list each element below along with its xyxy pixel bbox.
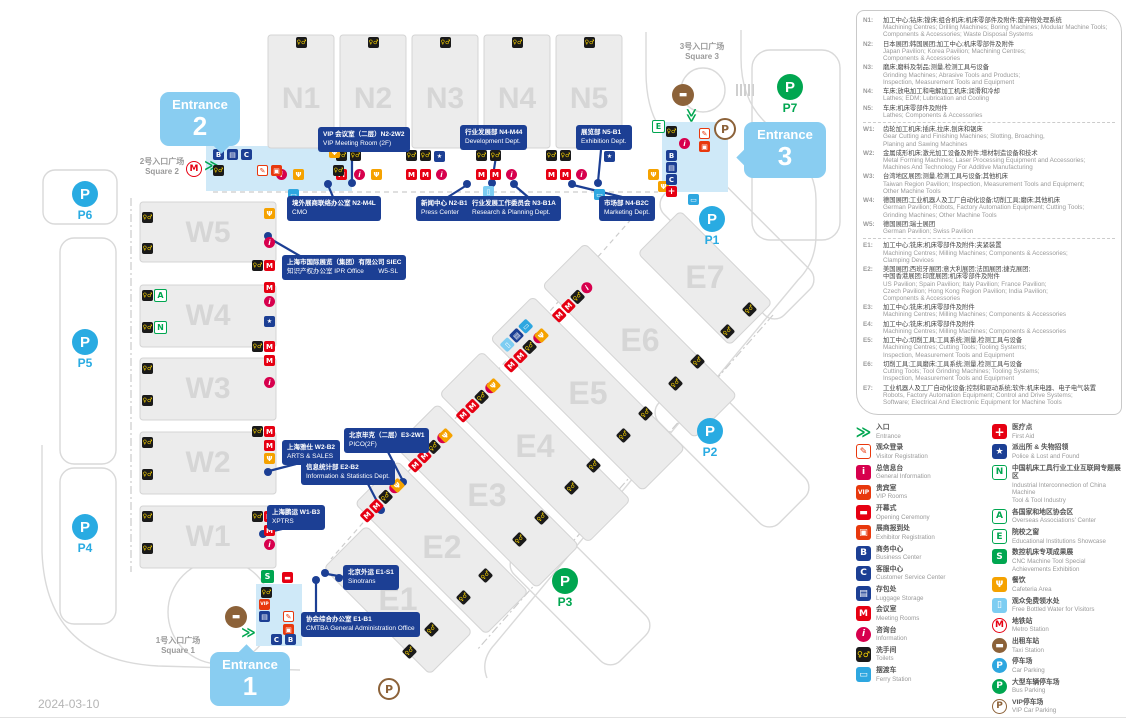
entrance-icon: ≫ xyxy=(856,424,871,439)
facility-zh: 出租车站 xyxy=(1012,638,1122,646)
facility-legend-right: + 医疗点 First Aid ★ 派出所 & 失物招领 Police & Lo… xyxy=(992,424,1122,719)
facility-en: Ferry Station xyxy=(876,676,986,684)
hall-code: E5: xyxy=(863,337,880,359)
toilets-icon xyxy=(368,37,379,48)
page-bottom-divider xyxy=(0,717,1126,718)
facility-zh: 派出所 & 失物招领 xyxy=(1012,444,1122,452)
hall-desc-en: Cutting Tools; Tool Grinding Machines; T… xyxy=(883,368,1115,382)
hall-desc-en: Robots, Factory Automation Equipment; Co… xyxy=(883,392,1115,406)
hall-desc-en: German Pavilion; Swiss Pavilion xyxy=(883,228,1115,235)
legend-facility-entry: ▯ 观众免费领水处 Free Bottled Water for Visitor… xyxy=(992,598,1122,614)
toilets-icon xyxy=(690,354,706,370)
hall-code: E4: xyxy=(863,321,880,335)
customer-service-icon: C xyxy=(856,566,871,581)
legend-hall-entry: E1: 加工中心;铣床;机床零部件及附件;夹紧装置 Machining Cent… xyxy=(863,242,1115,264)
cnc-achievements-icon: S xyxy=(992,549,1007,564)
hall-code: W1: xyxy=(863,126,880,148)
taxi-station-icon: ▬ xyxy=(992,638,1007,653)
map-label-en: Sinotrans xyxy=(348,577,394,586)
luggage-storage-icon xyxy=(666,162,677,173)
legend-facility-entry: ▭ 摆渡车 Ferry Station xyxy=(856,667,986,683)
police-icon xyxy=(434,151,445,162)
facility-en: Luggage Storage xyxy=(876,595,986,603)
toilets-icon xyxy=(560,150,571,161)
legend-hall-entry: N1: 加工中心;钻床;镗床;组合机床;机床零部件及附件;废弃物处理系统 Mac… xyxy=(863,17,1115,39)
legend-hall-entry: N4: 车床;放电加工和电解加工机床;润滑和冷却 Lathes; EDM; Lu… xyxy=(863,88,1115,102)
hall-legend-group-n: N1: 加工中心;钻床;镗床;组合机床;机床零部件及附件;废弃物处理系统 Mac… xyxy=(863,17,1115,119)
exhibition-map-page: N1 N2 N3 N4 N5 W5 W4 W3 W2 W1 E1 E2 E3 E… xyxy=(0,0,1126,723)
parking-p5: P5 xyxy=(59,329,111,370)
information-icon xyxy=(264,377,275,388)
hall-desc-en: Machining Centres; Milling Machines; Com… xyxy=(883,250,1115,264)
legend-hall-entry: N2: 日本展团;韩国展团;加工中心;机床零部件及附件 Japan Pavili… xyxy=(863,41,1115,63)
meeting-rooms-icon xyxy=(546,169,557,180)
legend-facility-entry: B 商务中心 Business Center xyxy=(856,546,986,562)
map-label-zh: 上海市国际展览（集团）有限公司 SIEC xyxy=(287,258,401,267)
toilets-icon xyxy=(252,341,263,352)
legend-hall-entry: E3: 加工中心;铣床;机床零部件及附件 Machining Centres; … xyxy=(863,304,1115,318)
overseas-associations-icon: A xyxy=(992,509,1007,524)
ferry-station-icon xyxy=(688,194,699,205)
bus-parking-icon xyxy=(552,568,578,594)
parking-p7: P7 xyxy=(764,74,816,115)
facility-zh: 停车场 xyxy=(1012,658,1122,666)
facility-legend: ≫ 入口 Entrance ✎ 观众登录 Visitor Registratio… xyxy=(856,424,1122,719)
legend-hall-entry: E5: 加工中心;切削工具;工具系统;测量,检测工具与设备 Machining … xyxy=(863,337,1115,359)
hall-code: E2: xyxy=(863,266,880,302)
map-label-en: Research & Planning Dept. xyxy=(472,208,556,217)
taxi-station-icon xyxy=(672,84,694,106)
information-icon xyxy=(436,169,447,180)
cafeteria-icon xyxy=(264,453,275,464)
map-label-marketing-dept: 市场部 N4-B2CMarketing Dept. xyxy=(599,196,655,221)
map-label-zh: 新闻中心 N2-B1 xyxy=(421,199,468,208)
facility-en: VIP Car Parking xyxy=(1012,707,1122,715)
legend-panel: N1: 加工中心;钻床;镗床;组合机床;机床零部件及附件;废弃物处理系统 Mac… xyxy=(856,10,1122,719)
hall-desc-zh: 加工中心;切削工具;工具系统;测量,检测工具与设备 xyxy=(883,337,1115,344)
facility-zh: 开幕式 xyxy=(876,505,986,513)
legend-hall-entry: N5: 车床;机床零部件及附件 Lathes; Components & Acc… xyxy=(863,105,1115,119)
meeting-rooms-icon xyxy=(560,169,571,180)
legend-hall-entry: W1: 齿轮加工机床;插床,拉床,刨床和锯床 Gear Cutting and … xyxy=(863,126,1115,148)
facility-en: Customer Service Center xyxy=(876,574,986,582)
toilets-icon xyxy=(478,568,494,584)
facility-en: Car Parking xyxy=(1012,667,1122,675)
hall-desc-zh: 加工中心;铣床;机床零部件及附件 xyxy=(883,304,1115,311)
hall-desc-zh: 切削工具;工具磨床;工具系统;测量,检测工具与设备 xyxy=(883,361,1115,368)
legend-hall-entry: W3: 台湾地区展团;测量,检测工具与设备;其他机床 Taiwan Region… xyxy=(863,173,1115,195)
facility-en: Opening Ceremony xyxy=(876,514,986,522)
toilets-icon xyxy=(742,302,758,318)
visitor-registration-icon: ✎ xyxy=(856,444,871,459)
police-icon xyxy=(264,316,275,327)
toilets-icon xyxy=(142,322,153,333)
facility-zh: 院校之窗 xyxy=(1012,529,1122,537)
bus-parking-icon xyxy=(777,74,803,100)
facility-en: Metro Station xyxy=(1012,626,1122,634)
square-2-label: 2号入口广场 Square 2 xyxy=(131,157,193,176)
industrial-internet-icon xyxy=(154,321,167,334)
entrance-arrows-icon xyxy=(243,627,254,638)
facility-zh: 入口 xyxy=(876,424,986,432)
hall-legend: N1: 加工中心;钻床;镗床;组合机床;机床零部件及附件;废弃物处理系统 Mac… xyxy=(856,10,1122,415)
map-label-vip-meeting-room: VIP 会议室（二层）N2-2W2VIP Meeting Room (2F) xyxy=(318,127,410,152)
toilets-icon xyxy=(720,324,736,340)
hall-desc-zh: 磨床;磨料及制品;测量,检测工具与设备 xyxy=(883,64,1115,71)
hall-desc-en: Taiwan Region Pavilion; Inspection, Meas… xyxy=(883,181,1115,195)
police-icon: ★ xyxy=(992,444,1007,459)
overseas-associations-icon xyxy=(154,289,167,302)
hall-code: N4: xyxy=(863,88,880,102)
car-parking-icon xyxy=(72,181,98,207)
facility-en: Visitor Registration xyxy=(876,453,986,461)
legend-facility-entry: E 院校之窗 Educational Institutions Showcase xyxy=(992,529,1122,545)
toilets-icon xyxy=(296,37,307,48)
facility-en: Exhibitor Registration xyxy=(876,534,986,542)
car-parking-icon xyxy=(697,418,723,444)
map-label-zh: 上海雅仕 W2-B2 xyxy=(287,443,335,452)
car-parking-icon xyxy=(72,329,98,355)
facility-en: CNC Machine Tool Special Achievements Ex… xyxy=(1012,558,1122,574)
hall-desc-zh: 齿轮加工机床;插床,拉床,刨床和锯床 xyxy=(883,126,1115,133)
parking-p1: P1 xyxy=(686,206,738,247)
hall-desc-zh: 加工中心;铣床;机床零部件及附件;夹紧装置 xyxy=(883,242,1115,249)
map-label-zh: 展览部 N5-B1 xyxy=(581,128,627,137)
hall-desc-zh: 工业机器人及工厂自动化设备;控制和驱动系统;软件;机床电器、电子电气装置 xyxy=(883,385,1115,392)
hall-code: N3: xyxy=(863,64,880,86)
map-label-zh: VIP 会议室（二层）N2-2W2 xyxy=(323,130,405,139)
parking-p4: P4 xyxy=(59,514,111,555)
legend-facility-entry: + 医疗点 First Aid xyxy=(992,424,1122,440)
legend-facility-entry: C 客服中心 Customer Service Center xyxy=(856,566,986,582)
map-label-siec-ipr: 上海市国际展览（集团）有限公司 SIEC知识产权办公室 IPR Office W… xyxy=(282,255,406,280)
hall-legend-group-e: E1: 加工中心;铣床;机床零部件及附件;夹紧装置 Machining Cent… xyxy=(863,242,1115,406)
legend-facility-entry: ★ 派出所 & 失物招领 Police & Lost and Found xyxy=(992,444,1122,460)
facility-en: Free Bottled Water for Visitors xyxy=(1012,606,1122,614)
legend-hall-entry: E4: 加工中心;铣床;机床零部件及附件 Machining Centres; … xyxy=(863,321,1115,335)
facility-zh: 会议室 xyxy=(876,606,986,614)
map-label-zh: 协会综合办公室 E1-B1 xyxy=(306,615,415,624)
legend-hall-entry: W2: 金属成形机床;激光加工设备及附件;增材制造设备和技术 Metal For… xyxy=(863,150,1115,172)
map-label-cmo: 境外展商联络办公室 N2-M4LCMO xyxy=(287,196,381,221)
legend-facility-entry: S 数控机床专项成果展 CNC Machine Tool Special Ach… xyxy=(992,549,1122,573)
meeting-rooms-icon xyxy=(406,169,417,180)
toilets-icon xyxy=(564,480,580,496)
facility-en: Meeting Rooms xyxy=(876,615,986,623)
customer-service-icon xyxy=(666,174,677,185)
toilets-icon xyxy=(142,511,153,522)
hall-code: E6: xyxy=(863,361,880,383)
road-icon-cluster xyxy=(551,280,594,323)
map-label-en: CMO xyxy=(292,208,376,217)
hall-desc-en: Machining Centres; Milling Machines; Com… xyxy=(883,311,1115,318)
general-information-icon: i xyxy=(856,465,871,480)
map-label-en: 知识产权办公室 IPR Office W5-SL xyxy=(287,267,401,276)
toilets-icon xyxy=(252,260,263,271)
map-overlay: Entrance 2 Entrance 3 Entrance 1 P1 P2 P… xyxy=(0,0,860,723)
information-icon: i xyxy=(856,627,871,642)
toilets-icon xyxy=(142,243,153,254)
luggage-storage-icon xyxy=(227,149,238,160)
cafeteria-icon xyxy=(648,169,659,180)
hall-desc-zh: 金属成形机床;激光加工设备及附件;增材制造设备和技术 xyxy=(883,150,1115,157)
legend-facility-entry: A 各国家和地区协会区 Overseas Associations' Cente… xyxy=(992,509,1122,525)
luggage-storage-icon: ▤ xyxy=(856,586,871,601)
parking-p3: P3 xyxy=(539,568,591,609)
toilets-icon xyxy=(142,290,153,301)
car-parking-icon xyxy=(699,206,725,232)
legend-divider xyxy=(863,238,1115,239)
facility-zh: 观众免费领水处 xyxy=(1012,598,1122,606)
meeting-rooms-icon xyxy=(264,282,275,293)
map-label-en: Press Center xyxy=(421,208,468,217)
toilets-icon xyxy=(424,622,440,638)
legend-divider xyxy=(863,122,1115,123)
visitor-registration-icon xyxy=(257,165,268,176)
map-label-research-planning: 行业发展工作委员会 N3-B1AResearch & Planning Dept… xyxy=(467,196,561,221)
legend-facility-entry: ♀♂ 洗手间 Toilets xyxy=(856,647,986,663)
toilets-icon xyxy=(586,458,602,474)
meeting-rooms-icon xyxy=(264,341,275,352)
map-label-zh: 行业发展部 N4-M44 xyxy=(465,128,522,137)
legend-facility-entry: ≫ 入口 Entrance xyxy=(856,424,986,440)
map-label-zh: 行业发展工作委员会 N3-B1A xyxy=(472,199,556,208)
legend-facility-entry: P VIP停车场 VIP Car Parking xyxy=(992,699,1122,715)
hall-desc-zh: 美国展团;西班牙展团;意大利展团;法国展团;捷克展团; 中国香港展团;印度展团;… xyxy=(883,266,1115,280)
map-label-en: Marketing Dept. xyxy=(604,208,650,217)
map-label-en: PICO(2F) xyxy=(349,440,424,449)
legend-facility-entry: i 咨询台 Information xyxy=(856,627,986,643)
toilets-icon xyxy=(584,37,595,48)
business-center-icon xyxy=(285,634,296,645)
cafeteria-icon xyxy=(264,208,275,219)
vip-parking-icon xyxy=(714,118,736,140)
metro-station-icon xyxy=(186,161,202,177)
hall-code: E1: xyxy=(863,242,880,264)
facility-zh: 各国家和地区协会区 xyxy=(1012,509,1122,517)
facility-zh: 数控机床专项成果展 xyxy=(1012,549,1122,557)
vip-room-icon xyxy=(259,599,270,610)
toilets-icon xyxy=(142,212,153,223)
legend-facility-entry: ✎ 观众登录 Visitor Registration xyxy=(856,444,986,460)
parking-p2: P2 xyxy=(684,418,736,459)
hall-desc-zh: 车床;放电加工和电解加工机床;润滑和冷却 xyxy=(883,88,1115,95)
facility-en: Educational Institutions Showcase xyxy=(1012,538,1122,546)
entrance-1-balloon: Entrance 1 xyxy=(210,652,290,706)
legend-facility-entry: M 地铁站 Metro Station xyxy=(992,618,1122,634)
hall-desc-zh: 日本展团;韩国展团;加工中心;机床零部件及附件 xyxy=(883,41,1115,48)
map-label-zh: 北京毕克（二层）E3-2W1 xyxy=(349,431,424,440)
facility-zh: 展商报到处 xyxy=(876,525,986,533)
map-label-en: Development Dept. xyxy=(465,137,522,146)
facility-en: Overseas Associations' Center xyxy=(1012,517,1122,525)
toilets-icon: ♀♂ xyxy=(856,647,871,662)
hall-legend-group-w: W1: 齿轮加工机床;插床,拉床,刨床和锯床 Gear Cutting and … xyxy=(863,126,1115,235)
meeting-rooms-icon xyxy=(264,426,275,437)
facility-en: Bus Parking xyxy=(1012,687,1122,695)
facility-zh: VIP停车场 xyxy=(1012,699,1122,707)
facility-en: First Aid xyxy=(1012,433,1122,441)
hall-code: W5: xyxy=(863,221,880,235)
facility-en: Toilets xyxy=(876,655,986,663)
hall-desc-en: Machining Centres; Cutting Tools; Toolin… xyxy=(883,344,1115,358)
meeting-rooms-icon xyxy=(264,355,275,366)
map-label-sinotrans: 北京外运 E1-S1Sinotrans xyxy=(343,565,399,590)
toilets-icon xyxy=(476,150,487,161)
facility-zh: 商务中心 xyxy=(876,546,986,554)
toilets-icon xyxy=(333,165,344,176)
car-parking-icon: P xyxy=(992,658,1007,673)
customer-service-icon xyxy=(271,634,282,645)
customer-service-icon xyxy=(241,149,252,160)
map-label-info-statistics: 信息统计部 E2-B2Information & Statistics Dept… xyxy=(301,460,395,485)
facility-zh: 医疗点 xyxy=(1012,424,1122,432)
facility-zh: 餐饮 xyxy=(1012,577,1122,585)
information-icon xyxy=(506,169,517,180)
car-parking-icon xyxy=(72,514,98,540)
facility-zh: 客服中心 xyxy=(876,566,986,574)
square-3-label: 3号入口广场 Square 3 xyxy=(666,42,738,61)
legend-hall-entry: N3: 磨床;磨料及制品;测量,检测工具与设备 Grinding Machine… xyxy=(863,64,1115,86)
map-label-zh: 市场部 N4-B2C xyxy=(604,199,650,208)
legend-facility-entry: ▬ 出租车站 Taxi Station xyxy=(992,638,1122,654)
cnc-achievements-icon xyxy=(261,570,274,583)
entrance-arrows-icon xyxy=(686,110,697,121)
toilets-icon xyxy=(420,150,431,161)
toilets-icon xyxy=(534,510,550,526)
meeting-rooms-icon xyxy=(490,169,501,180)
information-icon xyxy=(354,169,365,180)
toilets-icon xyxy=(440,37,451,48)
facility-en: Information xyxy=(876,635,986,643)
hall-desc-zh: 德国展团;工业机器人及工厂自动化设备;切削工具;磨床;其他机床 xyxy=(883,197,1115,204)
educational-institutions-icon: E xyxy=(992,529,1007,544)
hall-code: E7: xyxy=(863,385,880,407)
meeting-rooms-icon xyxy=(476,169,487,180)
business-center-icon xyxy=(666,150,677,161)
information-icon xyxy=(264,539,275,550)
facility-en: Business Center xyxy=(876,554,986,562)
metro-station-icon: M xyxy=(992,618,1007,633)
meeting-rooms-icon xyxy=(420,169,431,180)
legend-facility-entry: ▬ 开幕式 Opening Ceremony xyxy=(856,505,986,521)
cafeteria-icon xyxy=(371,169,382,180)
hall-desc-en: Japan Pavilion; Korea Pavilion; Machinin… xyxy=(883,48,1115,62)
entrance-number: 2 xyxy=(160,113,240,139)
toilets-icon xyxy=(456,590,472,606)
map-label-en: VIP Meeting Room (2F) xyxy=(323,139,405,148)
police-icon xyxy=(604,151,615,162)
toilets-icon xyxy=(512,37,523,48)
hall-desc-en: Grinding Machines; Abrasive Tools and Pr… xyxy=(883,72,1115,86)
hall-code: E3: xyxy=(863,304,880,318)
entrance-number: 1 xyxy=(210,673,290,699)
legend-hall-entry: E2: 美国展团;西班牙展团;意大利展团;法国展团;捷克展团; 中国香港展团;印… xyxy=(863,266,1115,302)
vip-parking-icon xyxy=(378,678,400,700)
toilets-icon xyxy=(213,165,224,176)
industrial-internet-icon: N xyxy=(992,465,1007,480)
information-icon xyxy=(264,237,275,248)
hall-desc-en: German Pavilion; Robots, Factory Automat… xyxy=(883,204,1115,218)
map-label-pico: 北京毕克（二层）E3-2W1PICO(2F) xyxy=(344,428,429,453)
facility-en: Industrial Interconnection of China Mach… xyxy=(1012,482,1122,505)
toilets-icon xyxy=(490,150,501,161)
facility-zh: 贵宾室 xyxy=(876,485,986,493)
toilets-icon xyxy=(616,428,632,444)
map-label-zh: 境外展商联络办公室 N2-M4L xyxy=(292,199,376,208)
hall-desc-en: Machining Centres; Milling Machines; Com… xyxy=(883,328,1115,335)
map-label-development-dept: 行业发展部 N4-M44Development Dept. xyxy=(460,125,527,150)
hall-desc-zh: 德国展团;瑞士展团 xyxy=(883,221,1115,228)
information-icon xyxy=(264,296,275,307)
hall-desc-zh: 加工中心;铣床;机床零部件及附件 xyxy=(883,321,1115,328)
facility-zh: 中国机床工具行业工业互联网专题展区 xyxy=(1012,465,1122,482)
hall-desc-en: Metal Forming Machines; Laser Processing… xyxy=(883,157,1115,171)
hall-code: W4: xyxy=(863,197,880,219)
map-label-exhibition-dept: 展览部 N5-B1Exhibition Dept. xyxy=(576,125,632,150)
first-aid-icon xyxy=(666,186,677,197)
legend-facility-entry: ▤ 存包处 Luggage Storage xyxy=(856,586,986,602)
cafeteria-icon xyxy=(293,169,304,180)
map-label-en: Information & Statistics Dept. xyxy=(306,472,390,481)
toilets-icon xyxy=(402,644,418,660)
toilets-icon xyxy=(252,426,263,437)
hall-desc-zh: 加工中心;钻床;镗床;组合机床;机床零部件及附件;废弃物处理系统 xyxy=(883,17,1115,24)
toilets-icon xyxy=(142,395,153,406)
facility-zh: 大型车辆停车场 xyxy=(1012,679,1122,687)
legend-facility-entry: Ψ 餐饮 Cafeteria Area xyxy=(992,577,1122,593)
legend-hall-entry: W5: 德国展团;瑞士展团 German Pavilion; Swiss Pav… xyxy=(863,221,1115,235)
educational-institutions-icon xyxy=(652,120,665,133)
facility-en: Taxi Station xyxy=(1012,647,1122,655)
parking-p6: P6 xyxy=(59,181,111,222)
toilets-icon xyxy=(512,532,528,548)
free-water-icon: ▯ xyxy=(992,598,1007,613)
luggage-storage-icon xyxy=(259,611,270,622)
vip-room-icon: VIP xyxy=(856,485,871,500)
facility-zh: 洗手间 xyxy=(876,647,986,655)
information-icon xyxy=(679,138,690,149)
hall-desc-en: Machining Centres; Drilling Machines; Bo… xyxy=(883,24,1115,38)
bus-parking-icon: P xyxy=(992,679,1007,694)
hall-code: W2: xyxy=(863,150,880,172)
facility-zh: 总信息台 xyxy=(876,465,986,473)
vip-parking-icon: P xyxy=(992,699,1007,714)
map-label-zh: 信息统计部 E2-B2 xyxy=(306,463,390,472)
legend-facility-entry: ▣ 展商报到处 Exhibitor Registration xyxy=(856,525,986,541)
map-date: 2024-03-10 xyxy=(38,697,99,711)
facility-en: General Information xyxy=(876,473,986,481)
facility-en: Cafeteria Area xyxy=(1012,586,1122,594)
legend-facility-entry: VIP 贵宾室 VIP Rooms xyxy=(856,485,986,501)
map-label-press-center: 新闻中心 N2-B1Press Center xyxy=(416,196,473,221)
opening-ceremony-icon: ▬ xyxy=(856,505,871,520)
entrance-number: 3 xyxy=(744,143,826,169)
hall-desc-zh: 台湾地区展团;测量,检测工具与设备;其他机床 xyxy=(883,173,1115,180)
exhibitor-registration-icon: ▣ xyxy=(856,525,871,540)
toilets-icon xyxy=(668,376,684,392)
map-label-en: CMTBA General Administration Office xyxy=(306,624,415,633)
map-label-xptrs: 上海鹏运 W1-B3XPTRS xyxy=(267,505,325,530)
legend-facility-entry: i 总信息台 General Information xyxy=(856,465,986,481)
facility-zh: 观众登录 xyxy=(876,444,986,452)
facility-zh: 咨询台 xyxy=(876,627,986,635)
business-center-icon: B xyxy=(856,546,871,561)
legend-hall-entry: W4: 德国展团;工业机器人及工厂自动化设备;切削工具;磨床;其他机床 Germ… xyxy=(863,197,1115,219)
legend-facility-entry: P 停车场 Car Parking xyxy=(992,658,1122,674)
legend-hall-entry: E7: 工业机器人及工厂自动化设备;控制和驱动系统;软件;机床电器、电子电气装置… xyxy=(863,385,1115,407)
ferry-station-icon: ▭ xyxy=(856,667,871,682)
